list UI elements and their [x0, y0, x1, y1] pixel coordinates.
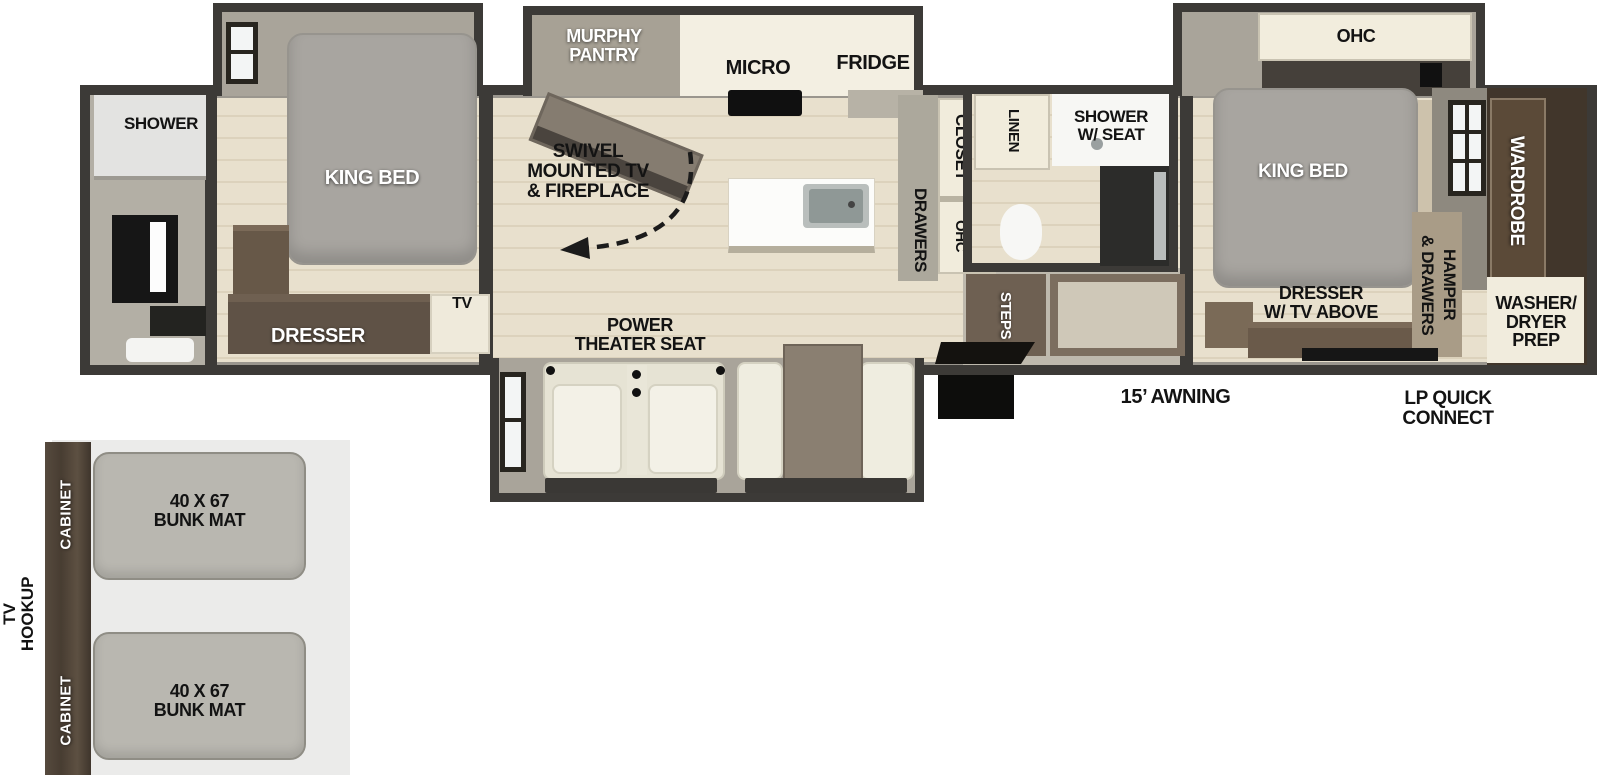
cupholder-icon — [546, 366, 555, 375]
floor-mat — [545, 478, 717, 493]
front-king-bed — [287, 33, 477, 265]
micro-label: MICRO — [713, 58, 803, 79]
rear-slide-item — [1420, 63, 1442, 87]
swivel-arrow-icon — [552, 146, 702, 264]
rear-bedroom-window — [1448, 100, 1486, 196]
drawers-label: DRAWERS — [906, 180, 934, 280]
kitchen-sink-basin — [809, 189, 863, 223]
theater-seat-cushion — [648, 384, 718, 474]
mid-bath-toilet — [1000, 204, 1042, 260]
lp-quick-connect-label: LP QUICK CONNECT — [1393, 389, 1503, 429]
wardrobe-label: WARDROBE — [1500, 110, 1532, 272]
bunk-mat: 40 X 67 BUNK MAT — [93, 452, 306, 580]
cupholder-icon — [632, 370, 641, 379]
front-bath-mirror-light — [150, 222, 166, 292]
front-bath-mirror — [112, 215, 178, 303]
hamper-drawers-label: HAMPER & DRAWERS — [1414, 215, 1460, 355]
dinette-bench — [860, 362, 914, 480]
bunk-mat: 40 X 67 BUNK MAT — [93, 632, 306, 760]
mid-bath-glass-panel — [1154, 172, 1166, 260]
shower-w-seat-label: SHOWER W/ SEAT — [1056, 108, 1166, 143]
entry-door — [935, 342, 1035, 364]
theater-seat-label: POWER THEATER SEAT — [556, 316, 724, 353]
cupholder-icon — [716, 366, 725, 375]
front-dresser-label: DRESSER — [248, 326, 388, 347]
bunk-mat-label: 40 X 67 BUNK MAT — [95, 492, 304, 529]
rear-king-bed — [1213, 88, 1418, 288]
front-bath-vanity — [150, 306, 206, 336]
floor-mat — [745, 478, 907, 493]
bunk-mat-label: 40 X 67 BUNK MAT — [95, 682, 304, 719]
dinette-bench — [737, 362, 783, 480]
theater-seat-cushion — [552, 384, 622, 474]
dinette-table — [783, 344, 863, 484]
faucet-icon — [848, 201, 855, 208]
rear-side-cabinet — [1205, 302, 1253, 348]
washer-dryer-label: WASHER/ DRYER PREP — [1489, 294, 1583, 350]
awning-label: 15’ AWNING — [1098, 387, 1253, 408]
linen-label: LINEN — [1000, 98, 1026, 164]
front-bedroom-window — [226, 22, 258, 84]
bunk-cabinet-label: CABINET — [58, 666, 75, 756]
bunk-cabinet-label: CABINET — [58, 470, 75, 560]
steps-label: STEPS — [992, 279, 1018, 353]
front-king-bed-label: KING BED — [292, 168, 452, 189]
cupholder-icon — [632, 388, 641, 397]
rear-tv-strip — [1302, 348, 1438, 361]
front-nightstand — [233, 225, 289, 305]
cooktop — [728, 90, 802, 116]
entry-platform — [1050, 274, 1185, 356]
front-tv-label: TV — [438, 296, 486, 313]
front-shower-pan — [94, 95, 206, 180]
fridge-label: FRIDGE — [828, 53, 918, 74]
front-shower-label: SHOWER — [106, 115, 216, 133]
theater-console — [627, 365, 647, 475]
rear-dresser-label: DRESSER W/ TV ABOVE — [1240, 284, 1402, 321]
living-slide-window — [500, 372, 526, 472]
front-bath-toilet — [126, 338, 194, 362]
rear-king-bed-label: KING BED — [1223, 162, 1383, 182]
rear-ohc-label: OHC — [1320, 27, 1392, 46]
murphy-pantry-label: MURPHY PANTRY — [538, 27, 670, 64]
tv-hookup-label: TV HOOKUP — [1, 569, 37, 659]
entry-step-exterior — [938, 375, 1014, 419]
rv-floorplan: SHOWER KING BED DRESSER TV MURPHY PANTRY… — [0, 0, 1600, 779]
